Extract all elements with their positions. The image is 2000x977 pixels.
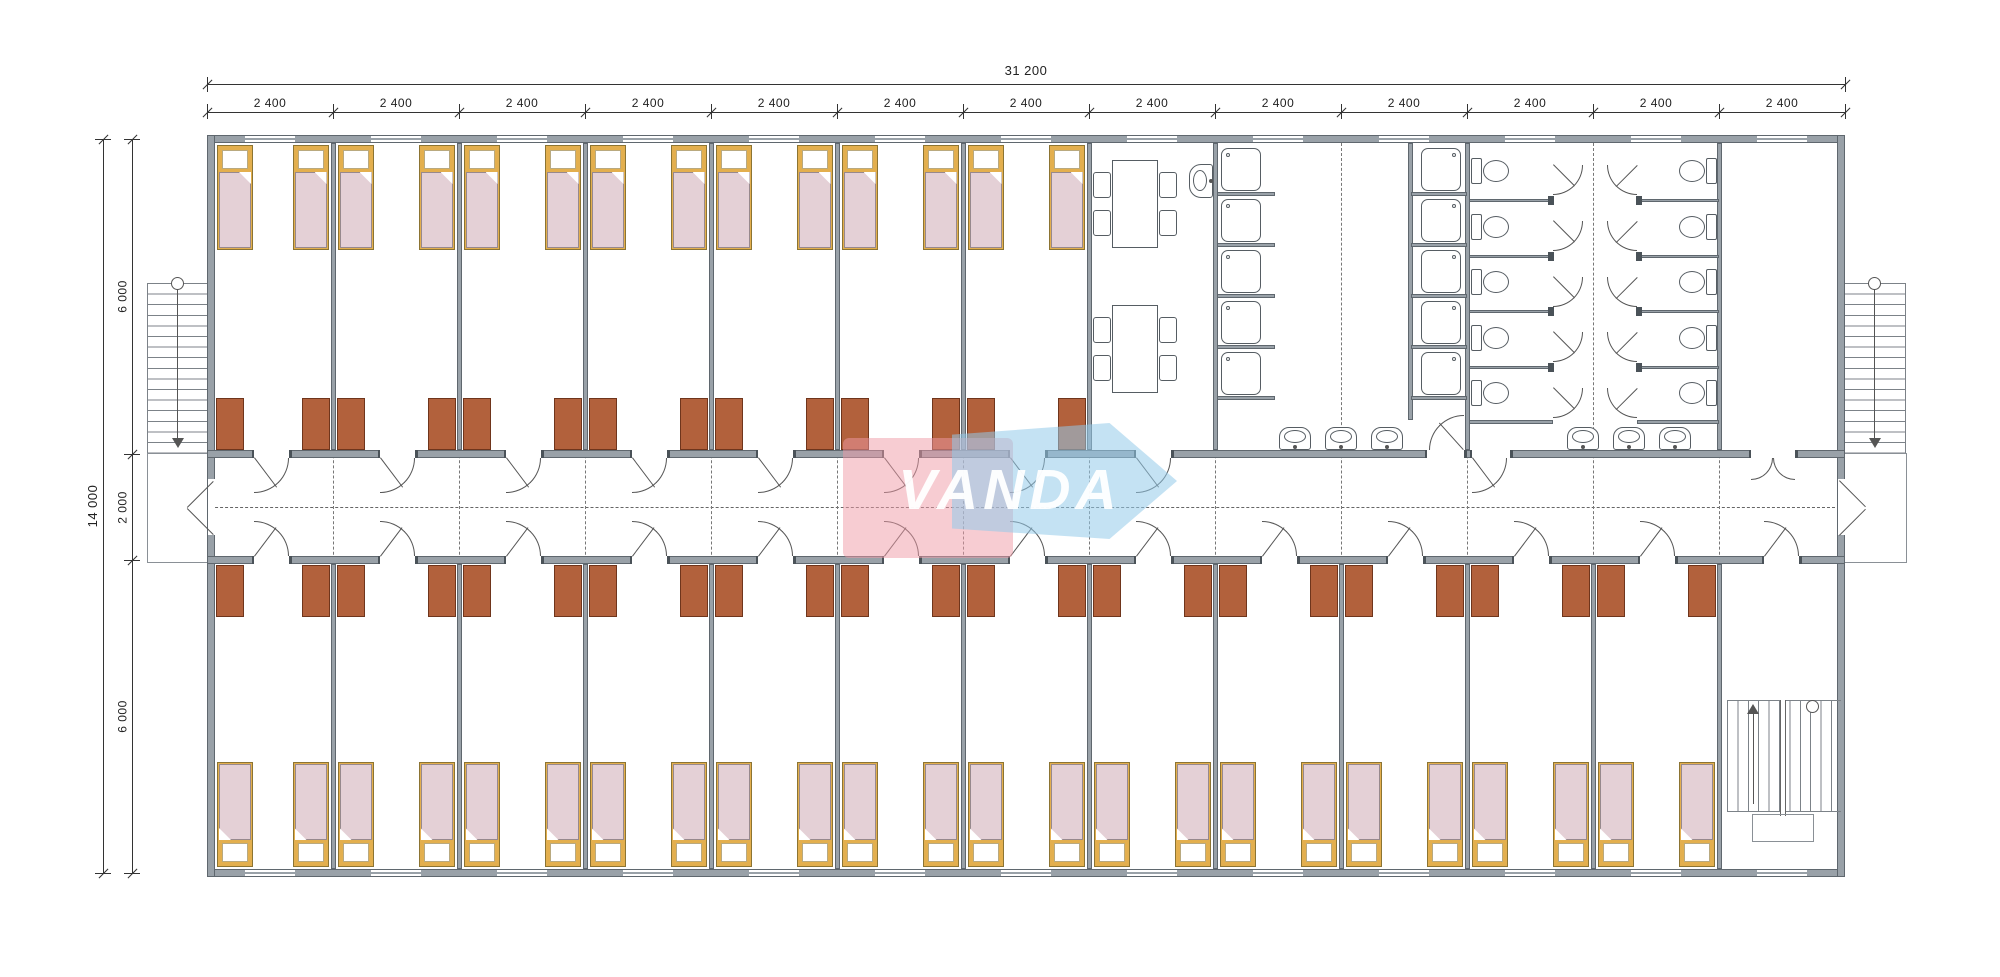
bed-pillow [469,843,495,862]
bed-pillow [469,150,495,169]
wall-cap [1549,556,1552,564]
partition-wall [835,564,840,869]
wardrobe [1058,565,1086,617]
window [245,869,295,877]
stall-divider [1637,255,1719,258]
bed-fold [1348,828,1360,840]
bed [590,145,626,250]
wardrobe [932,565,960,617]
wardrobe [302,565,330,617]
basin-tap [1581,445,1585,449]
bed-fold [340,828,352,840]
partition-wall [1339,564,1344,869]
shower-drain [1226,357,1230,361]
wardrobe [715,565,743,617]
bed [293,762,329,867]
bed [968,145,1004,250]
toilet-bowl [1679,216,1705,238]
bed-blanket [219,764,251,840]
bed [671,762,707,867]
shower-drain [1452,306,1456,310]
bed-blanket [970,764,1002,840]
bed-fold [738,172,750,184]
bed-blanket [970,172,1002,248]
door-opening [506,556,541,564]
window [749,135,799,143]
basin-bowl [1664,430,1686,443]
stall-divider [1637,366,1719,369]
bed-pillow [973,150,999,169]
wall-cap [541,450,544,458]
bed-fold [718,828,730,840]
door-swing-arc [1640,521,1675,556]
dimension-label-module: 2 400 [207,97,333,110]
module-gridline [711,440,712,575]
wall-cap [793,450,796,458]
toilet-tank [1471,158,1482,184]
basin-bowl [1618,430,1640,443]
bed-fold [1474,828,1486,840]
door-opening [632,556,667,564]
bed-blanket [340,172,372,248]
bed [419,762,455,867]
bed-pillow [1225,843,1251,862]
stair-rail [177,289,178,439]
bed-fold [970,828,982,840]
door-opening [506,450,541,458]
partition-wall [331,564,336,869]
door-opening [1427,450,1464,458]
bed-blanket [718,764,750,840]
wall-cap [1297,556,1300,564]
bed [545,145,581,250]
window [371,135,421,143]
bed [797,762,833,867]
partition-wall [1408,143,1413,420]
dimension-label-module: 2 400 [1215,97,1341,110]
bed-pillow [595,150,621,169]
toilet-bowl [1483,382,1509,404]
bed-pillow [222,843,248,862]
bed-fold [295,828,307,840]
door-swing-arc [632,521,667,556]
floor-plan: VANDA 31 200 14 000 2 4002 4002 4002 400… [0,0,2000,977]
wall-cap [1548,363,1554,372]
bed-pillow [424,150,450,169]
wardrobe [428,565,456,617]
stair-direction-line [1753,714,1754,804]
door-swing-arc [506,521,541,556]
dimension-label-module: 2 400 [711,97,837,110]
bed-fold [1303,828,1315,840]
bed-pillow [550,150,576,169]
wardrobe [715,398,743,450]
dimension-line [207,84,1845,85]
partition-wall [583,564,588,869]
chair [1159,210,1177,236]
bed-blanket [1051,764,1083,840]
wardrobe [1562,565,1590,617]
wall-cap [1548,307,1554,316]
bed-fold [1429,828,1441,840]
wardrobe [302,398,330,450]
basin-bowl [1330,430,1352,443]
bed-pillow [847,150,873,169]
wardrobe [1219,565,1247,617]
toilet-tank [1706,269,1717,295]
bed-fold [547,828,559,840]
bed [217,762,253,867]
wardrobe [1688,565,1716,617]
bed [671,145,707,250]
toilet-tank [1471,380,1482,406]
stall-divider [1411,294,1467,298]
bed-blanket [547,172,579,248]
toilet-tank [1706,380,1717,406]
bed-fold [486,172,498,184]
bed-blanket [718,172,750,248]
stair-start-circle [1806,700,1819,713]
basin-bowl [1376,430,1398,443]
wall-cap [541,556,544,564]
bed-pillow [721,843,747,862]
bed [338,145,374,250]
bed-blanket [1222,764,1254,840]
stall-divider [1469,255,1553,258]
shower-drain [1452,357,1456,361]
bed [1427,762,1463,867]
wall-cap [504,556,507,564]
dimension-line [132,139,133,873]
dining-table [1112,305,1158,393]
bed [1220,762,1256,867]
wall-cap [1762,556,1765,564]
bed-blanket [1429,764,1461,840]
window [1631,135,1681,143]
toilet-tank [1706,158,1717,184]
bed-blanket [1177,764,1209,840]
bed-blanket [466,764,498,840]
bed-pillow [550,843,576,862]
stair-direction-arrow [1747,704,1759,714]
dimension-label-module: 2 400 [1089,97,1215,110]
dimension-line [103,139,104,873]
chair [1159,317,1177,343]
bed-pillow [1054,843,1080,862]
external-staircase [1845,283,1906,453]
wardrobe [1471,565,1499,617]
bed [1094,762,1130,867]
basin-tap [1293,445,1297,449]
bed [419,145,455,250]
wall-cap [793,556,796,564]
bed-fold [567,172,579,184]
window [1127,135,1177,143]
module-gridline [837,440,838,575]
wall-cap [415,556,418,564]
bed-pillow [424,843,450,862]
stall-divider [1217,294,1275,298]
toilet-tank [1471,325,1482,351]
stall-divider [1411,243,1467,247]
wall-cap [1799,556,1802,564]
bed-fold [466,828,478,840]
wardrobe [463,398,491,450]
dimension-label-module: 2 400 [1467,97,1593,110]
chair [1159,355,1177,381]
partition-wall [457,564,462,869]
partition-wall [1717,143,1722,450]
wall-cap [1636,363,1642,372]
door-opening [254,556,289,564]
wardrobe [589,565,617,617]
bed-fold [1222,828,1234,840]
door-swing-arc [1514,521,1549,556]
stall-divider [1469,420,1553,424]
door-opening [380,450,415,458]
toilet-bowl [1483,271,1509,293]
dimension-label-module: 2 400 [963,97,1089,110]
stair-rail [1874,289,1875,439]
bed-fold [1681,828,1693,840]
stair-start-circle [171,277,184,290]
bed-pillow [298,150,324,169]
wardrobe [216,398,244,450]
door-opening [1838,479,1845,535]
wall-cap [1512,556,1515,564]
bed [797,145,833,250]
module-gridline [1719,440,1720,575]
wall-cap [1749,450,1752,458]
wall-cap [252,556,255,564]
shower-drain [1226,204,1230,208]
chair [1159,172,1177,198]
partition-wall [709,564,714,869]
wardrobe [554,398,582,450]
door-swing-arc [1773,458,1795,480]
wardrobe [1436,565,1464,617]
bed-blanket [1681,764,1713,840]
logo-watermark: VANDA [840,418,1185,568]
bed-blanket [673,764,705,840]
dimension-line [207,112,1845,113]
door-swing-arc [380,521,415,556]
shower-drain [1452,204,1456,208]
chair [1093,355,1111,381]
bed-pillow [802,150,828,169]
bed-blanket [219,172,251,248]
stall-divider [1217,243,1275,247]
stall-divider [1469,199,1553,202]
bed-fold [315,172,327,184]
dimension-label-segment: 2 000 [117,458,130,558]
bed-blanket [1303,764,1335,840]
bed-fold [360,172,372,184]
bed-fold [1096,828,1108,840]
bed-blanket [673,172,705,248]
partition-wall [835,143,840,450]
wall-cap [1260,556,1263,564]
bed [923,762,959,867]
wall-cap [1510,450,1513,458]
window [1505,869,1555,877]
shower-drain [1226,153,1230,157]
bed-blanket [1051,172,1083,248]
window [875,869,925,877]
window [371,869,421,877]
wardrobe [680,565,708,617]
bed [1472,762,1508,867]
door-opening [758,556,793,564]
wall-cap [1795,450,1798,458]
bed [1346,762,1382,867]
window [623,869,673,877]
module-gridline [333,440,334,575]
bed-pillow [343,150,369,169]
bed-blanket [547,764,579,840]
bed [545,762,581,867]
stair-landing [1752,814,1814,842]
door-opening [1514,556,1549,564]
bed-pillow [847,843,873,862]
dimension-label-segment: 6 000 [117,667,130,767]
wardrobe [554,565,582,617]
toilet-bowl [1483,327,1509,349]
bed-fold [945,172,957,184]
wall-cap [630,556,633,564]
bed-blanket [925,764,957,840]
door-opening [208,479,215,535]
basin-tap [1209,179,1213,183]
dimension-label-module: 2 400 [1341,97,1467,110]
shower-drain [1452,153,1456,157]
bed-blanket [592,764,624,840]
window [1379,869,1429,877]
bed-pillow [1054,150,1080,169]
wall-cap [289,450,292,458]
door-opening [1388,556,1423,564]
window [1253,135,1303,143]
basin-tap [1385,445,1389,449]
bed-blanket [340,764,372,840]
bed-blanket [925,172,957,248]
module-gridline [1215,440,1216,575]
bed-blanket [295,764,327,840]
door-opening [758,450,793,458]
bed-pillow [1432,843,1458,862]
bed-fold [239,172,251,184]
toilet-tank [1706,214,1717,240]
toilet-bowl [1679,271,1705,293]
bed-pillow [1603,843,1629,862]
wardrobe [680,398,708,450]
bed-blanket [799,172,831,248]
bed-fold [1555,828,1567,840]
wardrobe [1093,565,1121,617]
logo-text: VANDA [855,454,1165,526]
bed-pillow [1099,843,1125,862]
wardrobe [337,565,365,617]
stall-divider [1469,310,1553,313]
stall-divider [1217,192,1275,196]
wall-cap [289,556,292,564]
bed-pillow [343,843,369,862]
wall-cap [667,556,670,564]
bed-pillow [1684,843,1710,862]
wardrobe [428,398,456,450]
door-opening [1472,450,1510,458]
bed-blanket [466,172,498,248]
stall-divider [1637,199,1719,202]
window [1757,869,1807,877]
bed-fold [799,828,811,840]
basin-bowl [1193,170,1207,191]
door-swing-arc [758,521,793,556]
stair-start-circle [1868,277,1881,290]
entrance-landing [147,453,211,563]
chair [1093,172,1111,198]
basin-tap [1627,445,1631,449]
bed [716,762,752,867]
partition-wall [1087,564,1092,869]
module-gridline [459,440,460,575]
stall-divider [1637,310,1719,313]
wardrobe [967,565,995,617]
dimension-label-module: 2 400 [333,97,459,110]
bed [338,762,374,867]
bed [590,762,626,867]
module-gridline [1341,440,1342,575]
door-opening [1764,556,1799,564]
bed [1679,762,1715,867]
module-gridline [585,440,586,575]
module-gridline [1341,143,1342,450]
bed [968,762,1004,867]
chair [1093,210,1111,236]
bed-blanket [844,172,876,248]
bed-pillow [928,843,954,862]
stall-divider [1469,366,1553,369]
wardrobe [1597,565,1625,617]
bed [1049,762,1085,867]
window [875,135,925,143]
door-opening [1751,450,1795,458]
bed-fold [592,828,604,840]
shower-drain [1452,255,1456,259]
bed [293,145,329,250]
wardrobe [337,398,365,450]
toilet-bowl [1679,327,1705,349]
wardrobe [1345,565,1373,617]
bed-fold [864,172,876,184]
basin-tap [1673,445,1677,449]
wall-cap [1548,196,1554,205]
toilet-bowl [1679,160,1705,182]
bed-blanket [799,764,831,840]
dimension-label-segment: 6 000 [117,247,130,347]
wardrobe [841,565,869,617]
wall-cap [1636,196,1642,205]
bed [464,145,500,250]
partition-wall [1087,143,1092,450]
bed [1049,145,1085,250]
bed-pillow [1558,843,1584,862]
wall-cap [1548,252,1554,261]
module-gridline [1467,440,1468,575]
window [1379,135,1429,143]
stall-divider [1411,396,1467,400]
stall-divider [1411,345,1467,349]
